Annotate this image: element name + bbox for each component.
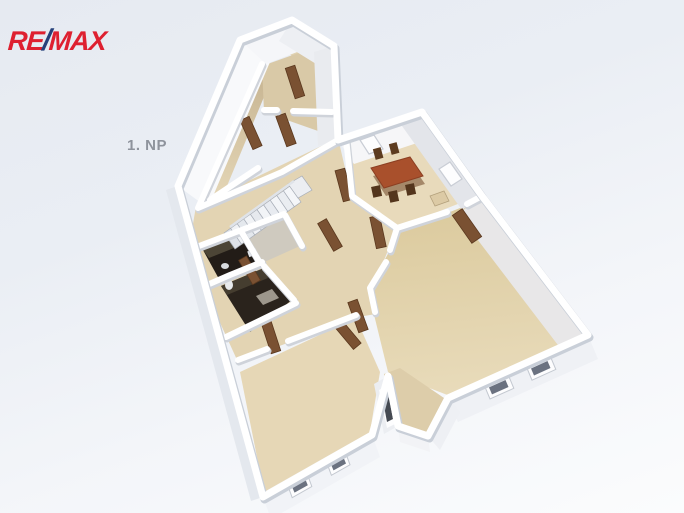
floorplan-3d-render: [0, 0, 684, 513]
logo-re-text: RE: [7, 26, 45, 56]
floorplan-page: RE/MAX 1. NP: [0, 0, 684, 513]
washbasin-2: [221, 263, 229, 269]
remax-logo: RE/MAX: [7, 26, 107, 56]
logo-max-text: MAX: [48, 26, 107, 56]
floor-label: 1. NP: [127, 137, 167, 154]
